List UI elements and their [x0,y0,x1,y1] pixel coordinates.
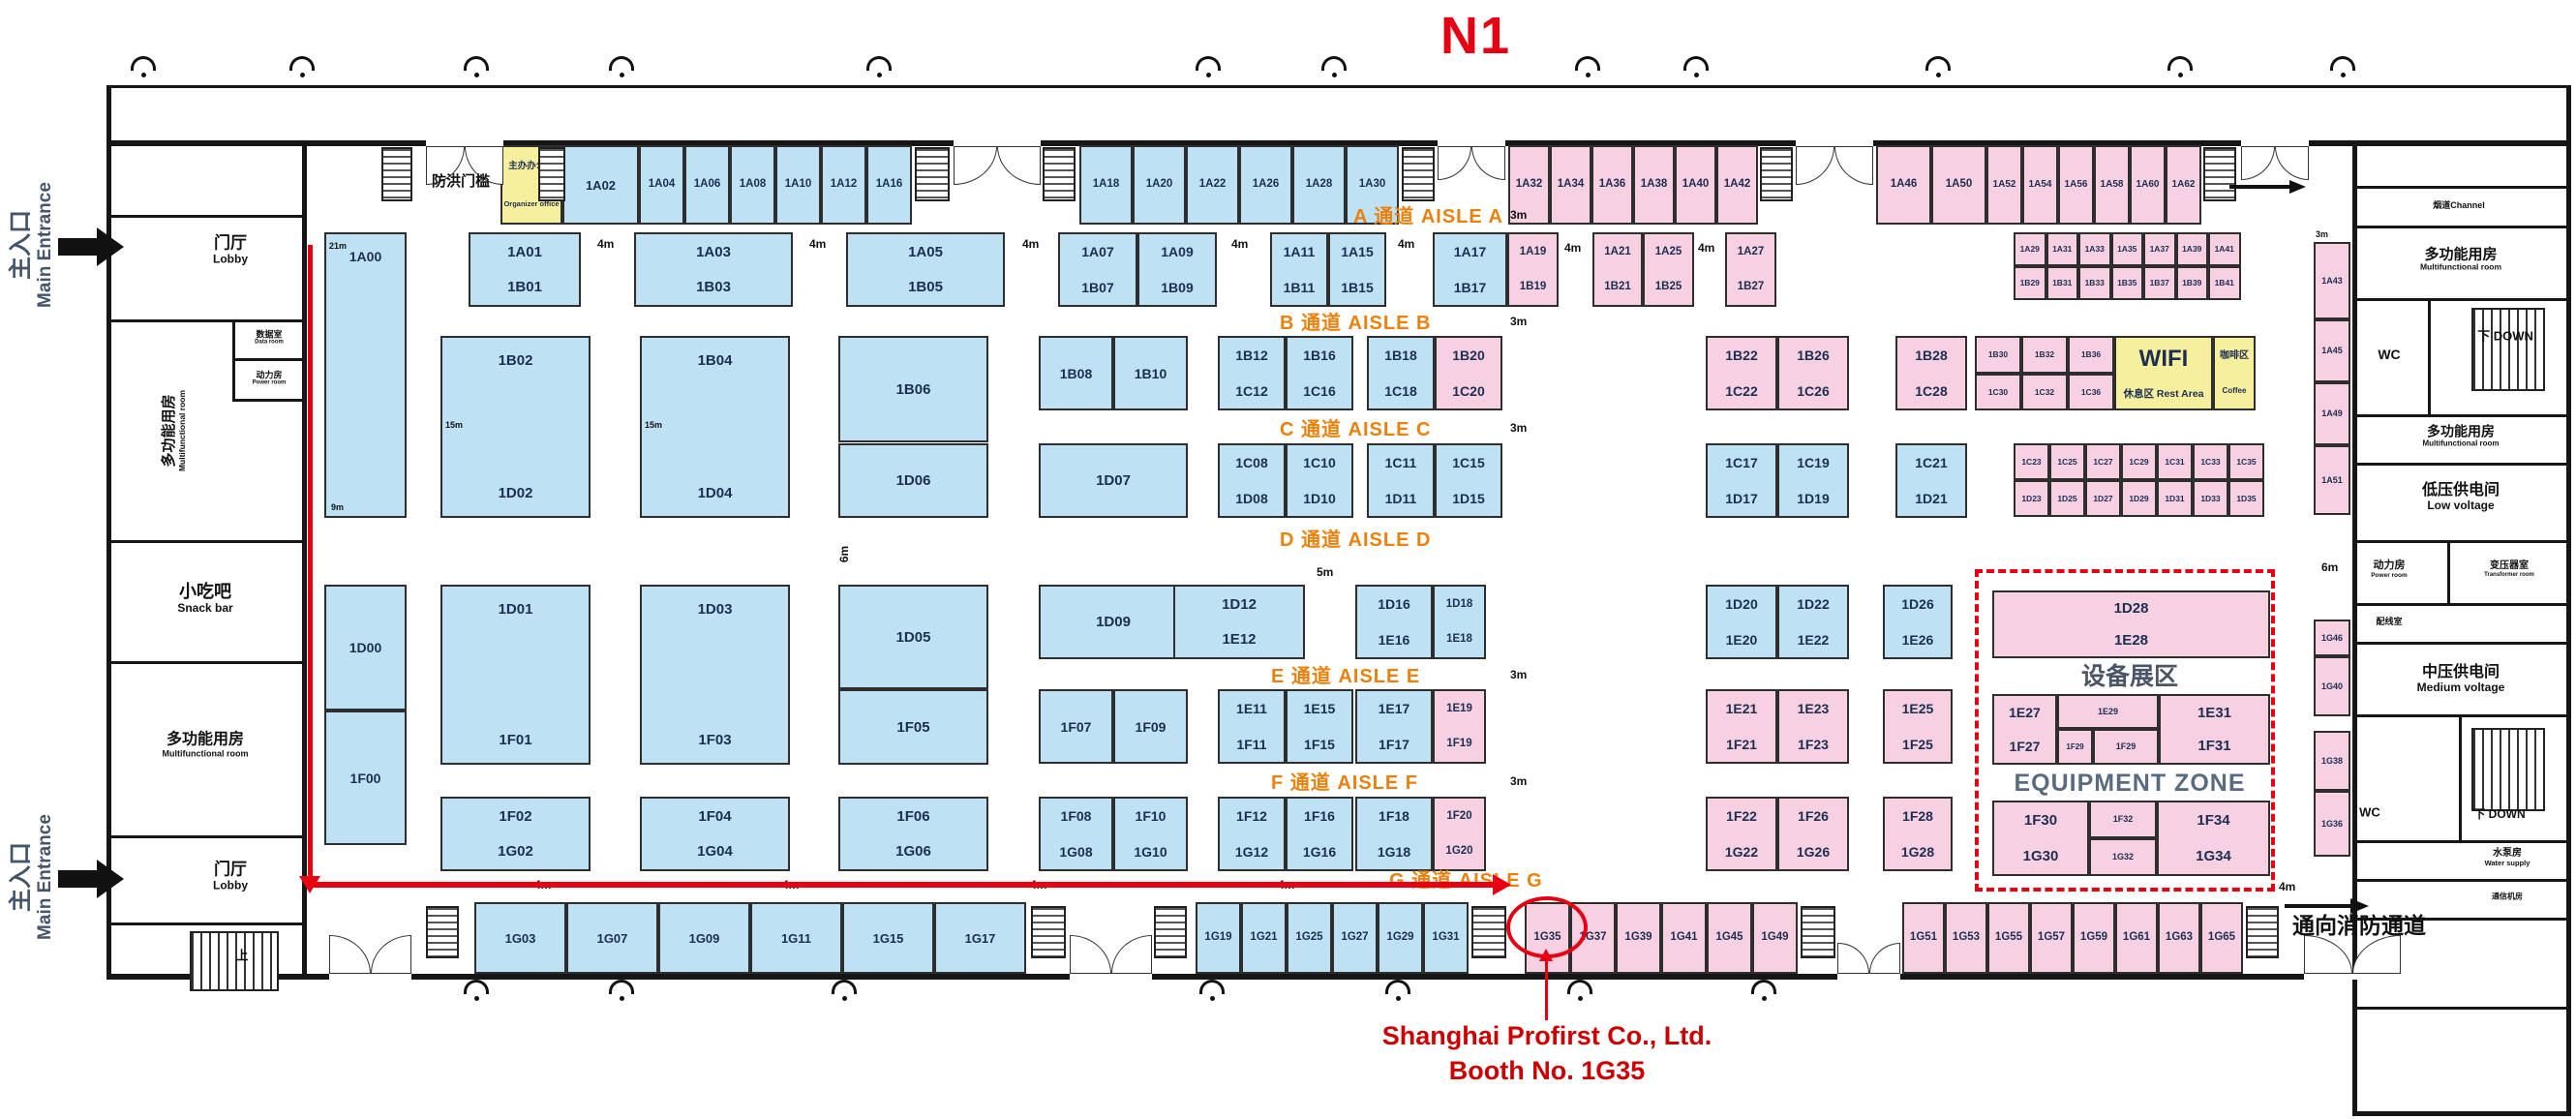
booth-label: 1D26 [1901,597,1933,611]
booth-label: 1G02 [498,844,533,859]
booth-label: 1E11 [1236,702,1267,715]
wall [2352,298,2570,301]
fire-passage-arrow-shaft [2285,904,2350,908]
booth-1C23: 1C23 [2014,443,2049,480]
booth-1C29: 1C29 [2121,443,2157,480]
utility-room [1031,906,1066,958]
wall [106,922,306,925]
booth-label: 1D22 [1797,597,1829,611]
booth-label: 1B08 [1060,367,1092,380]
booth-label: 1A43 [2321,277,2343,286]
wall [2459,714,2462,843]
booth-1F06: 1F061G06 [838,797,988,871]
booth-label: 1F22 [1726,809,1757,823]
room-label-lobby-bottom: 门厅Lobby [213,860,248,892]
booth-1C36: 1C36 [2068,374,2114,411]
booth-label: 1A06 [694,179,721,191]
booth-label: 1G04 [697,844,733,859]
exit-symbol-dot [877,73,882,77]
booth-label: 1B35 [2117,279,2137,287]
exit-symbol-icon [1683,56,1709,71]
room-name-cn: WC [2378,347,2400,362]
dimension-label: 3m [1510,422,1527,435]
wall [232,358,306,361]
booth-label: 1G03 [505,932,536,945]
booth-1A50: 1A50 [1931,145,1986,225]
booth-1C32: 1C32 [2021,374,2068,411]
booth-label: 1B15 [1341,281,1373,294]
booth-label: 1C22 [1725,384,1757,398]
wall [302,140,307,979]
booth-label: 1F15 [1304,738,1335,751]
booth-label: 1G26 [1797,845,1830,859]
booth-label: 1D01 [499,602,533,617]
utility-room [1801,906,1835,958]
booth-label: 1E26 [1902,633,1934,647]
equipment-zone-outline [1975,569,2275,892]
booth-1D31: 1D31 [2157,480,2193,517]
door-leaf [2275,146,2309,180]
booth-1D05: 1D05 [838,585,988,689]
booth-label: 1C23 [2021,458,2041,467]
exit-symbol-icon [464,56,489,71]
room-label-channel-room: 烟道Channel [2433,200,2485,210]
booth-1B02: 1B021D02 [440,336,591,518]
booth-label: 1F11 [1236,738,1266,751]
exit-symbol-icon [1196,56,1221,71]
utility-room [915,147,950,201]
booth-label: 1A05 [908,245,943,259]
booth-label: 1G28 [1901,845,1934,859]
booth-label: 1G36 [2321,820,2343,829]
door-leaf [997,146,1041,185]
booth-label: 1G41 [1670,932,1697,944]
booth-label: 1G22 [1725,845,1758,859]
aisle-label: B 通道 AISLE B [1280,314,1431,335]
booth-label: 1A35 [2117,245,2137,254]
booth-1D27: 1D27 [2085,480,2121,517]
door-leaf [2304,935,2352,974]
booth-1G09: 1G09 [658,902,750,974]
room-name-cn: 变压器室 [2484,560,2534,572]
booth-label: 1B41 [2215,279,2234,287]
booth-label: 1F09 [1136,720,1167,734]
exit-symbol-icon [464,980,489,994]
booth-label: 1G38 [2321,757,2343,766]
dimension-label: 4m [1398,238,1414,251]
fire-passage-arrow-icon [2350,898,2369,914]
booth-1F12: 1F121G12 [1218,797,1286,871]
aisle-label: F 通道 AISLE F [1271,773,1418,795]
room-label-power-room-left: 动力房Power room [253,370,287,386]
booth-1A02: 1A02 [562,145,639,225]
room-name-cn: 通信机房 [2492,892,2523,900]
booth-label: 1C32 [2035,388,2054,397]
door-opening [1837,974,1900,980]
booth-1E23: 1E231F23 [1777,689,1849,764]
booth-label: 1C11 [1385,456,1417,469]
booth-1A40: 1A40 [1675,145,1716,225]
booth-1G53: 1G53 [1945,902,1987,974]
dimension-label: 9m [331,503,344,513]
booth-label: 1A32 [1516,179,1543,191]
booth-label: 1G31 [1432,932,1459,944]
booth-label: 1A02 [586,179,616,192]
booth-1A33: 1A33 [2078,232,2111,266]
booth-1A54: 1A54 [2022,145,2058,225]
dimension-label: 4m [1564,242,1581,255]
booth-label: 1B39 [2182,279,2201,287]
booth-1D03: 1D031F03 [640,585,790,765]
booth-1G51: 1G51 [1902,902,1945,974]
booth-1A28: 1A28 [1292,145,1346,225]
booth-label: 1D02 [499,486,533,500]
booth-1G45: 1G45 [1707,902,1752,974]
room-name-en: Lobby [213,253,248,266]
door-leaf [1834,146,1873,185]
wall [232,399,306,402]
booth-label: 1D12 [1222,597,1257,612]
exit-symbol-dot [1578,996,1583,1001]
booth-label: 1C19 [1797,456,1829,469]
booth-label: 1G21 [1250,932,1277,944]
booth-label: 1D19 [1797,492,1829,505]
room-label-cable-room: 配线室 [2376,617,2402,626]
booth-label: 1D29 [2129,495,2148,503]
booth-1A38: 1A38 [1633,145,1675,225]
exit-symbol-dot [1762,996,1767,1001]
booth-label: 1G08 [1059,845,1092,859]
room-label-stairs-up: 上 [235,950,248,964]
door-opening [329,974,411,980]
booth-1A31: 1A31 [2046,232,2079,266]
booth-label: 1D00 [349,641,381,654]
booth-label: 1G17 [965,932,996,945]
door-leaf [954,146,997,185]
room-label-multifunctional-room-right-2: 多功能用房Multifunctional room [2422,423,2499,447]
exit-symbol-dot [1332,73,1337,77]
booth-label: 1B01 [507,280,542,294]
booth-label: 1A54 [2029,180,2052,190]
dimension-label: 防洪门槛 [432,174,490,190]
booth-label: 1E23 [1798,702,1830,715]
dimension-label: 4m [1698,242,1714,255]
exit-symbol-icon [2330,56,2355,71]
booth-label: 1D35 [2236,495,2256,503]
booth-1A03: 1A031B03 [634,232,793,307]
booth-label: 1B04 [698,353,733,368]
room-label-low-voltage-room: 低压供电间Low voltage [2422,482,2500,513]
booth-label: 1B07 [1081,281,1113,294]
door-leaf [371,935,412,974]
booth-1E19: 1E191F19 [1433,689,1486,764]
utility-room [1043,147,1076,201]
booth-label: WIFI [2139,348,2189,371]
booth-label: 1B27 [1738,282,1765,293]
wall [2352,226,2570,228]
room-label-multifunctional-room-left: 多功能用房Multifunctional room [163,732,249,760]
booth-label: 1E19 [1446,704,1472,715]
room-label-main-entrance-label-bottom: 主入口Main Entrance [2,771,62,983]
wall [106,974,2356,980]
room-name-cn: 数据室 [255,329,284,339]
booth-label: 1D10 [1303,492,1335,505]
exit-symbol-icon [1199,980,1225,994]
room-name-cn: 下 DOWN [2477,330,2533,345]
booth-1G41: 1G41 [1661,902,1707,974]
booth-1B36: 1B36 [2068,336,2114,374]
booth-1B41: 1B41 [2208,266,2241,300]
booth-label: 1B20 [1452,348,1484,362]
booth-label: 1B10 [1135,367,1167,380]
room-name-cn: 配线室 [2376,617,2402,626]
dimension-label: 15m [645,421,662,431]
wall [106,319,306,322]
booth-label: 1E17 [1379,702,1410,715]
exit-symbol-dot [620,996,624,1001]
booth-1D23: 1D23 [2014,480,2049,517]
booth-1G63: 1G63 [2158,902,2200,974]
booth-1B28: 1B281C28 [1895,336,1967,410]
booth-label: 1G65 [2208,932,2235,944]
booth-1E15: 1E151F15 [1286,689,1353,764]
room-label-multifunctional-room-right-1: 多功能用房Multifunctional room [2420,246,2501,272]
annotation-arrow-line [1545,960,1548,1020]
room-name-cn: 下 DOWN [2473,808,2525,822]
exit-symbol-icon [832,980,857,994]
room-label-main-entrance-label-top: 主入口Main Entrance [2,138,62,351]
aisle-label: D 通道 AISLE D [1280,530,1431,552]
route-line-vertical [308,245,313,876]
booth-label: 1F01 [499,733,531,747]
room-name-en: Multifunctional room [163,749,249,759]
exit-symbol-icon [1321,56,1347,71]
booth-label: 1F20 [1446,811,1471,823]
wall [2447,540,2450,606]
booth-1B08: 1B08 [1039,336,1113,410]
exit-symbol-icon [1925,56,1951,71]
booth-label: 1A37 [2150,245,2169,254]
booth-1B20: 1B201C20 [1435,336,1502,410]
booth-label: 1F10 [1136,809,1167,823]
room-name-en: Lobby [213,879,248,892]
booth-label: 1G10 [1134,845,1167,859]
booth-1A09: 1A091B09 [1137,232,1217,307]
booth-label: 1C10 [1303,456,1335,469]
room-name-cn: 低压供电间 [2422,482,2500,499]
booth-1B33: 1B33 [2078,266,2111,300]
booth-1G40: 1G40 [2314,656,2350,716]
exit-symbol-icon [609,56,634,71]
booth-1B35: 1B35 [2111,266,2144,300]
booth-1F18: 1F181G18 [1355,797,1433,871]
exit-symbol-dot [842,996,847,1001]
booth-label: 1G63 [2166,932,2193,944]
exit-symbol-icon [1567,980,1592,994]
booth-1B32: 1B32 [2021,336,2068,374]
utility-room [1760,147,1793,201]
aisle-label: A 通道 AISLE A [1353,207,1503,228]
booth-label: 1B25 [1655,282,1682,293]
wall [106,835,306,838]
dimension-label: 3m [1510,316,1527,328]
booth-1A22: 1A22 [1186,145,1239,225]
booth-label: 1D15 [1452,492,1484,505]
booth-1A25: 1A251B25 [1643,232,1694,307]
exit-symbol-dot [2341,73,2346,77]
door-leaf [1796,146,1834,185]
booth-label: 休息区 Rest Area [2123,389,2203,400]
wall [2428,298,2431,417]
booth-1B22: 1B221C22 [1706,336,1777,410]
booth-label: 1B02 [499,353,533,368]
booth-label: 1C28 [1915,384,1947,398]
room-label-medium-voltage-room: 中压供电间Medium voltage [2417,664,2505,695]
room-label-wc-top: WC [2378,347,2400,362]
booth-label: 1D21 [1915,492,1947,505]
booth-label: 1B31 [2052,279,2072,287]
booth-label: 1F00 [350,771,381,785]
booth-label: 1B28 [1915,348,1947,362]
booth-label: 1A11 [1284,245,1316,258]
booth-label: 1F02 [499,809,531,824]
booth-label: 1D27 [2093,495,2112,503]
booth-label: 1D09 [1096,615,1131,629]
door-leaf [2352,935,2401,974]
booth-1F09: 1F09 [1113,689,1188,764]
booth-label: 1E25 [1902,702,1934,715]
staircase [2471,308,2545,391]
booth-1G57: 1G57 [2030,902,2073,974]
booth-1D18: 1D181E18 [1433,585,1486,659]
exit-symbol-dot [474,996,479,1001]
booth-1G17: 1G17 [934,902,1026,974]
booth-label: 1A22 [1199,179,1227,191]
booth-label: 1B33 [2085,279,2105,287]
booth-label: 1F26 [1798,809,1829,823]
hall-title: N1 [1440,8,1511,64]
booth-1A18: 1A18 [1079,145,1133,225]
booth-label: 1A52 [1993,180,2016,190]
booth-label: 1B22 [1725,348,1757,362]
room-name-en: Snack bar [177,601,232,615]
booth-label: 1G19 [1204,932,1231,944]
booth-label: 1G11 [781,932,811,945]
booth-label: 1F06 [896,809,929,824]
booth-label: 1D08 [1235,492,1267,505]
booth-1A58: 1A58 [2094,145,2130,225]
booth-1B29: 1B29 [2014,266,2046,300]
booth-1B30: 1B30 [1975,336,2021,374]
booth-1G29: 1G29 [1378,902,1423,974]
booth-1A34: 1A34 [1550,145,1591,225]
booth-label: 1G45 [1715,932,1743,944]
exit-symbol-dot [1586,73,1591,77]
vertical-label-text: 主入口Main Entrance [2,138,62,351]
booth-label: 1B18 [1384,348,1416,362]
booth-label: 1C12 [1235,384,1267,398]
booth-label: 咖啡区 [2220,351,2249,361]
booth-label: 1G09 [689,932,720,945]
room-name-cn: WC [2359,806,2380,821]
booth-label: 1G53 [1953,932,1980,944]
room-name-cn: 多功能用房 [2422,423,2499,439]
booth-1A01: 1A011B01 [469,232,581,307]
booth-1A36: 1A36 [1591,145,1633,225]
booth-1F08: 1F081G08 [1039,797,1113,871]
booth-1C21: 1C211D21 [1895,443,1967,518]
vertical-label-text: 多功能用房Multifunctional room [137,324,211,537]
equipment-zone-label-cn: 设备展区 [2081,664,2178,690]
dimension-label: 6m [838,546,851,562]
vertical-label-line: 多功能用房 [161,395,177,468]
vertical-label-line: Multifunctional room [178,390,188,471]
wall [2352,463,2570,466]
booth-1G15: 1G15 [842,902,934,974]
booth-1D00: 1D00 [324,585,407,711]
dimension-label: 6m [2321,561,2338,574]
staircase [2471,728,2545,811]
booth-label: 1C26 [1797,384,1829,398]
annotation-booth-no: Booth No. 1G35 [1449,1057,1646,1085]
booth-label: 1C08 [1235,456,1267,469]
booth-label: 1A58 [2101,180,2124,190]
room-label-telecom-room: 通信机房 [2492,892,2523,900]
booth-1A49: 1A49 [2314,382,2350,445]
door-opening [2304,974,2401,980]
booth-label: 1A20 [1146,179,1173,191]
exit-symbol-dot [1396,996,1401,1001]
booth-1C31: 1C31 [2157,443,2193,480]
booth-label: 1E18 [1446,634,1472,646]
booth-1A20: 1A20 [1133,145,1186,225]
booth-label: 1D16 [1378,597,1409,611]
booth-1F04: 1F041G04 [640,797,790,871]
booth-label: 1A34 [1558,179,1585,191]
booth-label: 1D31 [2165,495,2184,503]
booth-label: 1D18 [1446,599,1473,611]
utility-room [426,906,459,958]
exit-symbol-icon [2167,56,2193,71]
booth-label: 1G07 [597,932,628,945]
utility-room [1154,906,1187,958]
room-label-lobby-top: 门厅Lobby [213,233,248,265]
booth-1G21: 1G21 [1241,902,1287,974]
booth-1F02: 1F021G02 [440,797,591,871]
booth-label: 1G06 [895,844,931,859]
booth-1A37: 1A37 [2143,232,2176,266]
booth-label: 1A10 [785,179,812,191]
wall [2352,603,2570,606]
booth-label: 1G27 [1341,932,1368,944]
utility-room [1402,147,1435,201]
booth-1G39: 1G39 [1616,902,1661,974]
room-name-en: Low voltage [2422,499,2500,513]
booth-1A45: 1A45 [2314,319,2350,382]
booth-1C35: 1C35 [2228,443,2264,480]
booth-label: 1A00 [349,250,381,263]
booth-label: 1G51 [1910,932,1937,944]
door-leaf [1471,146,1505,180]
booth-1F28: 1F281G28 [1883,797,1953,871]
exit-symbol-icon [609,980,634,994]
booth-1B31: 1B31 [2046,266,2079,300]
booth-1G27: 1G27 [1332,902,1378,974]
booth-1G31: 1G31 [1423,902,1469,974]
booth-label: 1B09 [1161,281,1193,294]
room-name-cn: 动力房 [253,370,287,379]
main-entrance-arrow-bottom-icon [97,860,124,898]
